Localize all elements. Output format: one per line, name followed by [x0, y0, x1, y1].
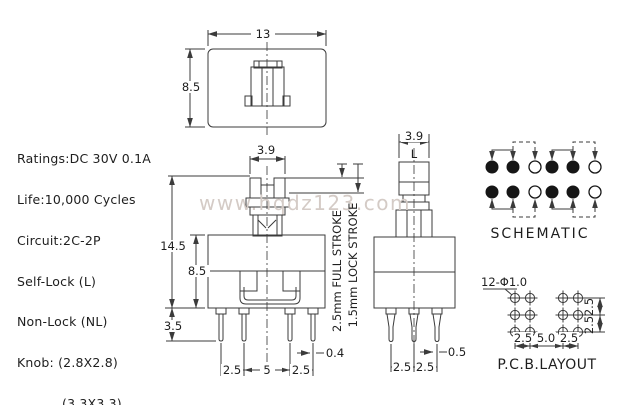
contact-open: [529, 161, 541, 173]
pcb-title: P.C.B.LAYOUT: [497, 357, 596, 373]
contact-open: [589, 186, 601, 198]
lock-stroke-label: 1.5mm LOCK STROKE: [346, 203, 360, 328]
pcb-pitch-v2: 2.5: [582, 316, 596, 334]
technical-drawing: www.hqdz123.com 13 8.5 3.9 14.5 8.5 3.5 …: [0, 0, 617, 405]
contact-closed: [486, 161, 498, 173]
side-knob-label: L: [411, 147, 418, 161]
schematic-pole-2: [546, 142, 601, 217]
dim-front-body-height: 8.5: [188, 264, 206, 278]
dim-side-pitch-right: 2.5: [416, 360, 434, 374]
schematic-pole-1: [486, 142, 541, 217]
side-view-body: [374, 237, 455, 308]
pcb-pitch-h3: 2.5: [560, 331, 578, 345]
schematic: [486, 142, 601, 217]
dim-front-pin-length: 3.5: [164, 319, 182, 333]
dim-side-pin-width: 0.5: [448, 345, 466, 359]
dim-front-knob-width: 3.9: [257, 143, 275, 157]
pcb-hole-callout: 12-Φ1.0: [481, 275, 527, 289]
dim-top-width: 13: [256, 27, 271, 41]
contact-closed: [546, 161, 558, 173]
top-view: [185, 30, 326, 135]
contact-closed: [507, 161, 519, 173]
full-stroke-label: 2.5mm FULL STROKE: [330, 210, 344, 332]
contact-open: [529, 186, 541, 198]
contact-closed: [486, 186, 498, 198]
watermark: www.hqdz123.com: [199, 191, 411, 215]
pcb-pitch-h1: 2.5: [514, 331, 532, 345]
dim-front-pitch-left: 2.5: [223, 363, 241, 377]
contact-closed: [546, 186, 558, 198]
contact-open: [589, 161, 601, 173]
dim-top-height: 8.5: [182, 80, 200, 94]
drawing-canvas: Ratings:DC 30V 0.1A Life:10,000 Cycles C…: [0, 0, 617, 405]
dim-front-total-height: 14.5: [160, 239, 186, 253]
pcb-pitch-h2: 5.0: [537, 331, 555, 345]
dim-front-pitch-center: 5: [263, 363, 270, 377]
front-view-body: [208, 235, 325, 308]
dim-front-pitch-right: 2.5: [292, 363, 310, 377]
dim-front-pin-width: 0.4: [326, 346, 344, 360]
contact-closed: [567, 186, 579, 198]
pcb-pitch-v1: 2.5: [582, 298, 596, 316]
dim-side-pitch-left: 2.5: [393, 360, 411, 374]
dim-side-knob-width: 3.9: [405, 129, 423, 143]
contact-closed: [507, 186, 519, 198]
schematic-title: SCHEMATIC: [490, 226, 589, 242]
contact-closed: [567, 161, 579, 173]
top-view-knob: [245, 61, 290, 106]
